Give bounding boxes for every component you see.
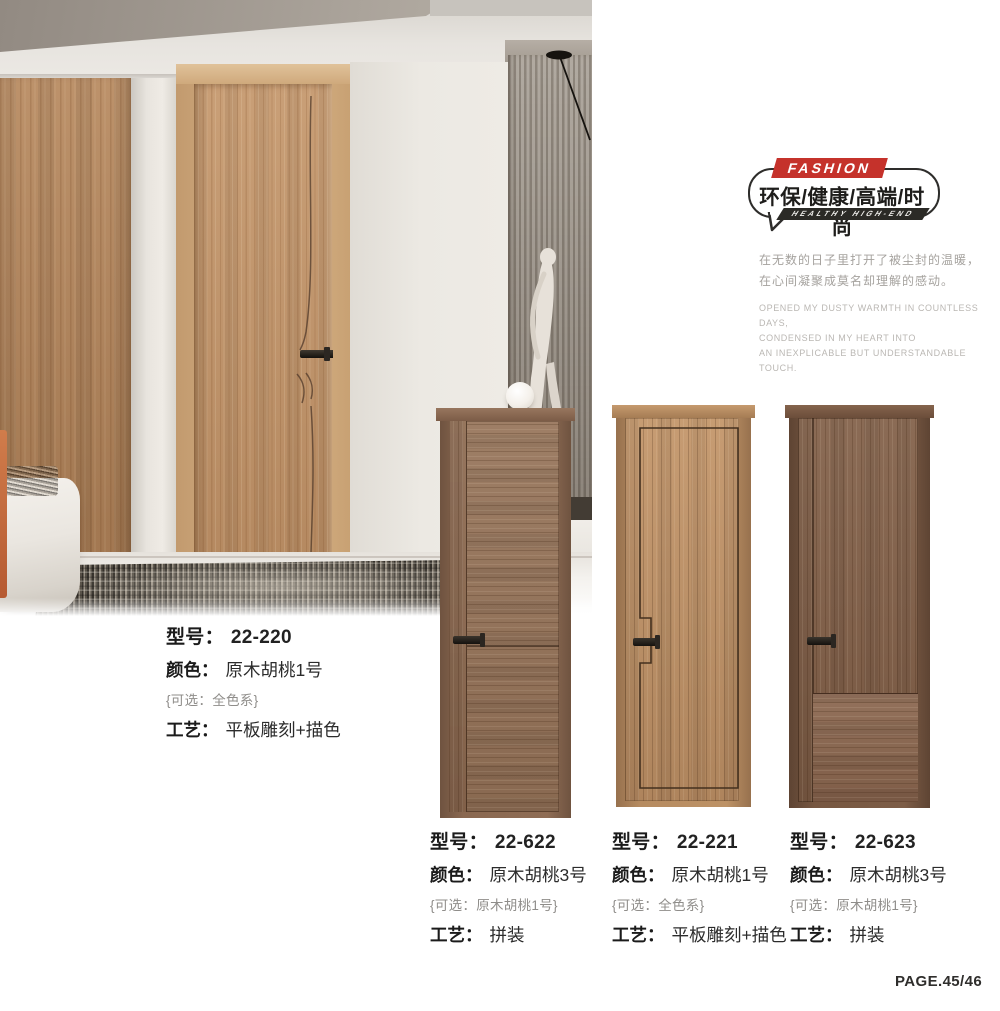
spec-color-line: 颜色：原木胡桃3号: [790, 862, 947, 887]
color-value: 原木胡桃1号: [672, 865, 769, 885]
model-label: 型号：: [166, 627, 224, 648]
craft-value: 平板雕刻+描色: [672, 925, 787, 945]
scene-door-handle-plate: [324, 347, 330, 361]
door-slab: [449, 421, 559, 812]
spec-color-line: 颜色：原木胡桃3号: [430, 862, 587, 887]
fashion-badge: FASHION 环保/健康/高端/时尚 HEALTHY HIGH-END: [742, 156, 952, 252]
fashion-ribbon: FASHION: [771, 158, 888, 178]
product-spec-22-220: 型号：22-220 颜色：原木胡桃1号 {可选：全色系} 工艺：平板雕刻+描色: [166, 622, 341, 742]
craft-value: 拼装: [490, 925, 525, 945]
product-spec-22-221: 型号：22-221 颜色：原木胡桃1号 {可选：全色系} 工艺：平板雕刻+描色: [612, 827, 787, 947]
spec-color-line: 颜色：原木胡桃1号: [166, 657, 341, 682]
craft-value: 平板雕刻+描色: [226, 720, 341, 740]
white-pillar: [131, 78, 176, 560]
intro-cn-line: 在心间凝聚成莫名却理解的感动。: [759, 271, 1000, 292]
spec-craft-line: 工艺：平板雕刻+描色: [166, 717, 341, 742]
door-frame-head: [436, 408, 575, 421]
intro-en-line: AN INEXPLICABLE BUT UNDERSTANDABLE TOUCH…: [759, 346, 1000, 376]
product-spec-22-622: 型号：22-622 颜色：原木胡桃3号 {可选：原木胡桃1号} 工艺：拼装: [430, 827, 587, 947]
door-bottom-panel: [813, 693, 918, 802]
carved-line-decoration: [194, 84, 332, 555]
spec-model-line: 型号：22-220: [166, 622, 341, 649]
door-handle-plate: [480, 633, 485, 647]
badge-subline-ribbon: HEALTHY HIGH-END: [776, 208, 929, 220]
product-spec-22-623: 型号：22-623 颜色：原木胡桃3号 {可选：原木胡桃1号} 工艺：拼装: [790, 827, 947, 947]
model-label: 型号：: [790, 832, 848, 853]
spec-model-line: 型号：22-221: [612, 827, 787, 854]
color-value: 原木胡桃3号: [850, 865, 947, 885]
craft-label: 工艺：: [166, 720, 219, 740]
ceiling-edge: [430, 0, 592, 16]
door-groove-outline: [625, 418, 739, 801]
model-value: 22-221: [677, 832, 738, 853]
model-value: 22-622: [495, 832, 556, 853]
intro-en-block: OPENED MY DUSTY WARMTH IN COUNTLESS DAYS…: [759, 301, 1000, 376]
craft-label: 工艺：: [790, 925, 843, 945]
product-door-22-622: [440, 408, 571, 818]
spec-model-line: 型号：22-622: [430, 827, 587, 854]
product-door-22-221: [616, 405, 751, 807]
ball-lamp: [506, 382, 534, 410]
spec-optional-line: {可选：原木胡桃1号}: [430, 894, 587, 914]
craft-label: 工艺：: [430, 925, 483, 945]
model-value: 22-623: [855, 832, 916, 853]
scene-door-slab: [194, 84, 332, 556]
color-label: 颜色：: [612, 865, 665, 885]
color-label: 颜色：: [790, 865, 843, 885]
product-door-22-623: [789, 405, 930, 808]
model-label: 型号：: [430, 832, 488, 853]
bench-striped-blanket: [0, 466, 58, 496]
spec-craft-line: 工艺：平板雕刻+描色: [612, 922, 787, 947]
door-handle-plate: [831, 634, 836, 648]
spec-optional-line: {可选：全色系}: [612, 894, 787, 914]
catalog-page: FASHION 环保/健康/高端/时尚 HEALTHY HIGH-END 在无数…: [0, 0, 1000, 1011]
page-number: PAGE.45/46: [895, 973, 982, 990]
scene-door-22-220: [176, 64, 350, 558]
orange-cushion-edge: [0, 430, 7, 598]
color-label: 颜色：: [166, 660, 219, 680]
craft-label: 工艺：: [612, 925, 665, 945]
spec-color-line: 颜色：原木胡桃1号: [612, 862, 787, 887]
spec-model-line: 型号：22-623: [790, 827, 947, 854]
spec-optional-line: {可选：全色系}: [166, 689, 341, 709]
color-label: 颜色：: [430, 865, 483, 885]
door-frame-head: [612, 405, 755, 418]
spec-craft-line: 工艺：拼装: [430, 922, 587, 947]
door-slab: [798, 418, 918, 802]
door-frame-head: [785, 405, 934, 418]
door-stile: [449, 421, 467, 812]
intro-text: 在无数的日子里打开了被尘封的温暖， 在心间凝聚成莫名却理解的感动。 OPENED…: [759, 250, 1000, 376]
intro-en-line: OPENED MY DUSTY WARMTH IN COUNTLESS DAYS…: [759, 301, 1000, 331]
door-slab: [625, 418, 739, 801]
bench-cushion: [0, 478, 80, 612]
door-handle-plate: [655, 635, 660, 649]
pendant-light: [545, 50, 592, 145]
spec-craft-line: 工艺：拼装: [790, 922, 947, 947]
intro-cn-line: 在无数的日子里打开了被尘封的温暖，: [759, 250, 1000, 271]
intro-en-line: CONDENSED IN MY HEART INTO: [759, 331, 1000, 346]
color-value: 原木胡桃1号: [226, 660, 323, 680]
model-label: 型号：: [612, 832, 670, 853]
craft-value: 拼装: [850, 925, 885, 945]
scene-door-frame-head: [176, 64, 350, 84]
color-value: 原木胡桃3号: [490, 865, 587, 885]
model-value: 22-220: [231, 627, 292, 648]
spec-optional-line: {可选：原木胡桃1号}: [790, 894, 947, 914]
